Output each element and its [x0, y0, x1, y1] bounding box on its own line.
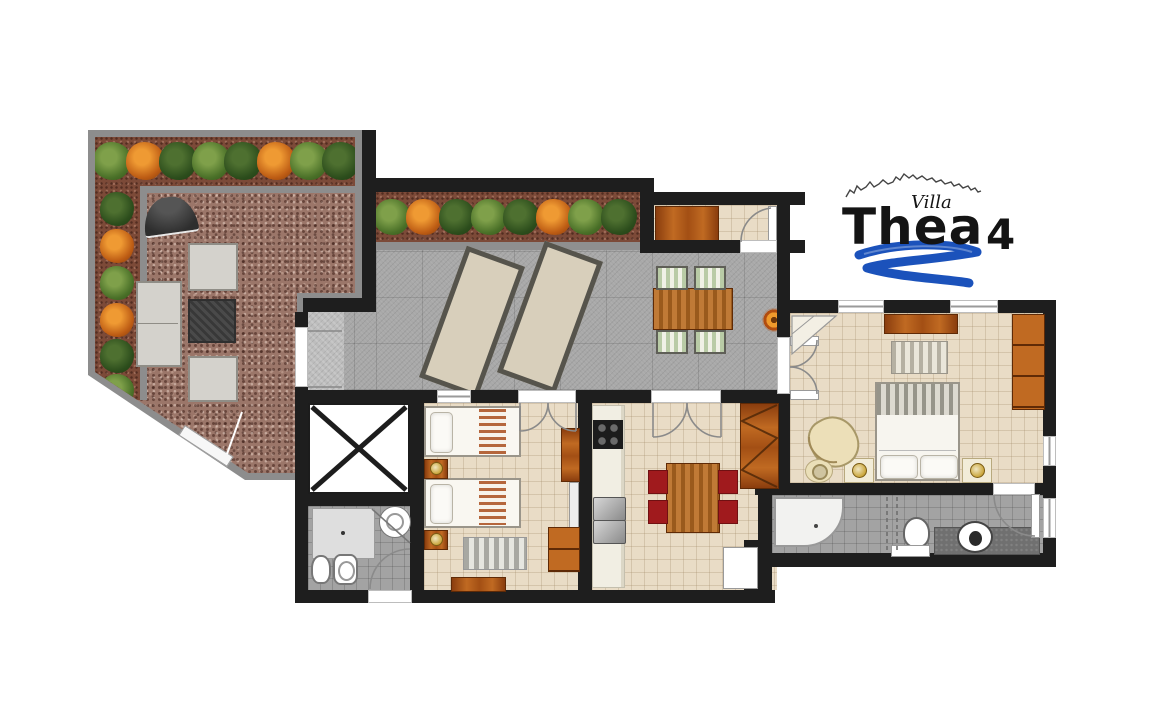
bath-door-leaf[interactable] [1031, 494, 1040, 538]
garden-table-double [136, 281, 182, 367]
tree [100, 339, 134, 373]
kitchen-door-opening[interactable] [651, 390, 721, 403]
outdoor-chair [656, 330, 688, 354]
bathroom-door-opening[interactable] [993, 483, 1035, 495]
dining-chair [648, 470, 668, 494]
tree [536, 199, 572, 235]
drain-icon [341, 531, 345, 535]
toilet-small-bath [333, 554, 358, 585]
fridge [723, 547, 758, 589]
logo-name-label: Thea [842, 198, 983, 256]
french-door-opening[interactable] [777, 337, 790, 394]
dining-table [666, 463, 720, 533]
bed-foot-blanket [877, 384, 958, 415]
entry-sideboard [655, 206, 719, 243]
twin-rug [463, 537, 527, 570]
tree [100, 374, 134, 408]
shower-room-door-opening[interactable] [368, 590, 412, 603]
tree [100, 192, 134, 226]
pillow [920, 455, 958, 479]
twin-mirror [569, 482, 579, 528]
single-bed-2 [424, 478, 521, 528]
tree [322, 142, 360, 180]
twin-bench [451, 577, 506, 592]
bedroom-rug [891, 341, 948, 374]
terrace-path [308, 312, 344, 390]
wall-terrace-north [362, 178, 654, 192]
dining-chair [718, 470, 738, 494]
garden-grill [188, 299, 236, 343]
lamp-icon [852, 463, 867, 478]
bathroom-window-east [1043, 498, 1056, 538]
tree [100, 229, 134, 263]
vanity-washbasin [957, 521, 993, 553]
bedroom-side-table [805, 459, 833, 483]
outdoor-chair [694, 266, 726, 290]
tree [100, 303, 134, 337]
tree [601, 199, 637, 235]
tree [374, 199, 410, 235]
wall-terrace-nw [303, 298, 376, 312]
washbasin [379, 506, 411, 538]
tree [471, 199, 507, 235]
nightstand-right [962, 458, 992, 483]
basin-ring [386, 513, 404, 531]
garden-table-2 [188, 356, 238, 402]
pillow [430, 412, 453, 453]
outdoor-chair [694, 330, 726, 354]
bidet [311, 555, 331, 584]
bedroom-window-east [1043, 436, 1056, 466]
wall-garden-east [362, 130, 376, 312]
bed-frame-line [879, 450, 956, 451]
bedroom-window-2 [950, 300, 998, 313]
terrace-curb [376, 242, 642, 250]
planted-border-strip [376, 192, 642, 242]
twin-wardrobe-1 [561, 428, 580, 482]
bath-shelf [891, 545, 930, 557]
wall-bedroom-north [790, 300, 1056, 313]
dining-chair [718, 500, 738, 524]
twin-wardrobe-2 [548, 527, 580, 572]
twin-window [437, 390, 471, 403]
bed-blanket [479, 481, 506, 525]
dining-chair [648, 500, 668, 524]
single-bed-1 [424, 406, 521, 457]
garden-path-h [140, 186, 355, 193]
bedroom-window-1 [838, 300, 884, 313]
outdoor-dining-table [653, 288, 733, 330]
twin-nightstand-1 [424, 459, 448, 479]
lamp-icon [970, 463, 985, 478]
double-bed [875, 382, 960, 481]
entrance-arrow-icon [180, 450, 202, 468]
table-ring [812, 464, 828, 480]
kitchen-hob [593, 420, 623, 449]
tree [503, 199, 539, 235]
outdoor-chair [656, 266, 688, 290]
tree [100, 266, 134, 300]
wall-south-main [295, 590, 775, 603]
pillow [880, 455, 918, 479]
wall-kitchen-west [578, 403, 592, 603]
kitchen-hatched-wardrobe [740, 403, 779, 489]
french-door-leaf-bottom[interactable] [790, 390, 819, 400]
drain-icon [814, 524, 818, 528]
tree [568, 199, 604, 235]
toilet-seat [338, 561, 355, 581]
bedroom-dresser [884, 314, 958, 334]
pillow [430, 484, 453, 524]
wall-stair-east [410, 390, 424, 603]
entry-door-sill[interactable] [740, 240, 777, 253]
table-divider [138, 323, 178, 324]
kitchen-sink-1 [593, 497, 626, 521]
bed-blanket [479, 409, 506, 454]
floor-plan-canvas: Villa Thea 4 [0, 0, 1152, 720]
lamp-icon [430, 462, 443, 475]
kitchen-sink-2 [593, 520, 626, 544]
tree [439, 199, 475, 235]
basin-bowl [969, 531, 982, 546]
garden-gate-opening[interactable] [295, 327, 308, 387]
wall-stair-south [302, 494, 412, 506]
shower-tray [312, 508, 375, 559]
bedroom-wardrobe [1012, 314, 1045, 410]
logo-number-label: 4 [986, 210, 1015, 259]
twin-nightstand-2 [424, 530, 448, 550]
french-door-leaf-top[interactable] [790, 336, 819, 346]
lamp-icon [430, 533, 443, 546]
tree [406, 199, 442, 235]
toilet-main-bath [903, 517, 930, 548]
stairwell-void [308, 403, 410, 494]
garden-table [188, 243, 238, 291]
twin-door-opening[interactable] [518, 390, 576, 403]
